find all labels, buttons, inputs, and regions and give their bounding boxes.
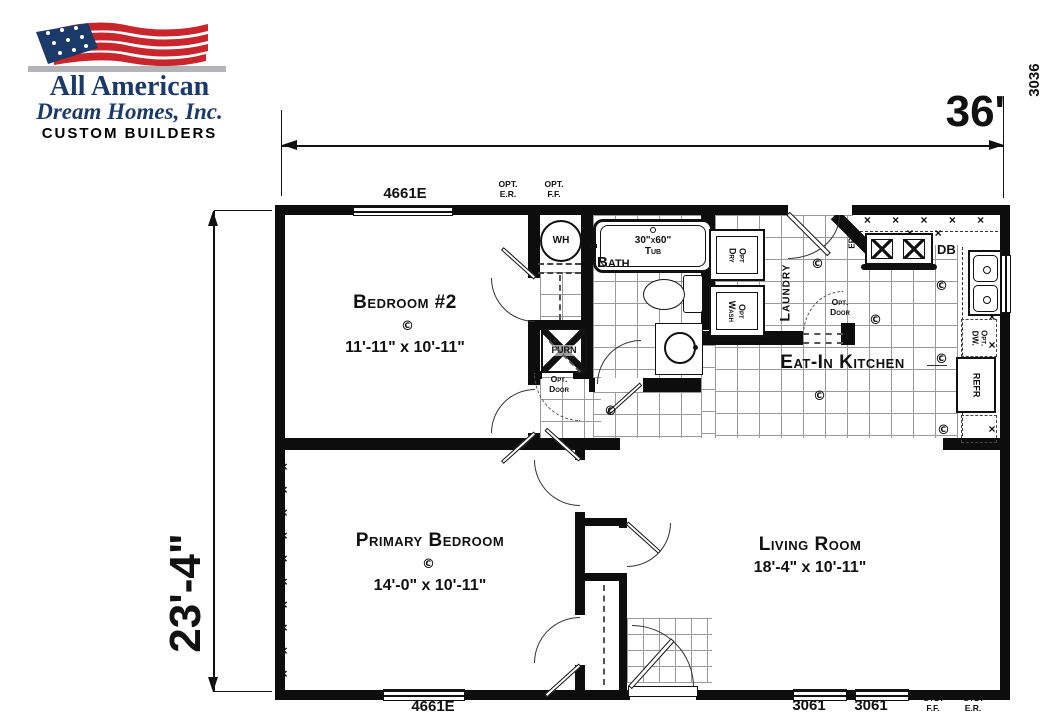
american-flag-icon xyxy=(30,20,212,70)
overall-depth-dimension: 23'-4" xyxy=(162,518,208,668)
primary-bedroom-size: 14'-0" x 10'-11" xyxy=(330,577,530,594)
back-door-opening xyxy=(788,205,852,215)
ceiling-outlet-symbol: © xyxy=(422,557,435,572)
water-heater-closet-front xyxy=(538,263,581,274)
closet-rod xyxy=(559,275,563,320)
extension-line xyxy=(214,691,272,692)
opt-ff-label: OPT. F.F. xyxy=(538,180,570,200)
tub-faucet xyxy=(590,244,597,248)
window-bottom-4661e xyxy=(383,689,465,701)
arrow-down-icon xyxy=(208,677,218,692)
extension-line xyxy=(281,110,282,196)
logo-tagline: CUSTOM BUILDERS xyxy=(22,126,237,142)
ceiling-outlet-symbol: © xyxy=(869,313,882,328)
floor-plan: Bedroom #2 © 11'-11" x 10'-11" WH FURN O… xyxy=(275,205,1010,700)
toilet xyxy=(643,279,685,310)
extension-line xyxy=(214,210,272,211)
opt-door-label: Opt. Door xyxy=(537,375,581,395)
optional-dryer: Opt Dry xyxy=(709,229,765,281)
ceiling-outlet-symbol: © xyxy=(813,389,826,404)
logo-subtitle: Dream Homes, Inc. xyxy=(22,100,237,125)
drawer-base-label: DB xyxy=(937,243,956,257)
window-label-3036: 3036 xyxy=(1027,57,1043,103)
width-dimension-line xyxy=(282,145,1004,147)
furnace: FURN xyxy=(541,328,587,373)
burner xyxy=(903,239,925,259)
arrow-left-icon xyxy=(282,140,297,150)
optional-washer: Opt Wash xyxy=(709,285,765,337)
sink-basin xyxy=(973,285,998,312)
door-arc xyxy=(534,460,580,506)
arrow-up-icon xyxy=(208,211,218,226)
range-front xyxy=(861,264,937,270)
extension-line xyxy=(1003,96,1004,198)
bedroom2-name: Bedroom #2 xyxy=(305,293,505,314)
water-heater: WH xyxy=(540,220,582,262)
tub-drain xyxy=(650,227,656,233)
ceiling-outlet-symbol: © xyxy=(937,423,950,438)
optional-dishwasher: Opt. DW. xyxy=(961,319,997,357)
ceiling-outlet-symbol: © xyxy=(604,404,617,419)
window-top-4661e xyxy=(353,205,453,216)
opt-er-label: OPT. E.R. xyxy=(492,180,524,200)
primary-bedroom-name: Primary Bedroom xyxy=(315,531,545,552)
window-label-top: 4661E xyxy=(360,186,450,202)
kitchen-sink xyxy=(968,250,1002,316)
door-arc xyxy=(534,617,580,663)
ceiling-outlet-symbol: © xyxy=(401,319,414,334)
closet-rod xyxy=(603,585,607,685)
overall-width-dimension: 36' xyxy=(905,88,1005,136)
arrow-right-icon xyxy=(989,140,1004,150)
window-3061-right xyxy=(855,689,909,701)
ceiling-outlet-symbol: © xyxy=(935,279,948,294)
refrigerator: REFR xyxy=(956,357,996,413)
sink-basin xyxy=(664,332,696,364)
door-arc xyxy=(491,278,535,322)
company-logo: All American Dream Homes, Inc. CUSTOM BU… xyxy=(22,18,237,150)
floor-plan-page: All American Dream Homes, Inc. CUSTOM BU… xyxy=(0,0,1060,721)
ceiling-outlet-symbol: © xyxy=(811,257,824,272)
logo-title: All American xyxy=(22,72,237,102)
marriage-wall-marks: × × × × × × × × × × xyxy=(280,455,298,685)
optional-cabinet xyxy=(961,415,997,443)
sink-faucet xyxy=(693,345,698,350)
living-room-name: Living Room xyxy=(715,535,905,556)
sink-basin xyxy=(973,255,998,282)
window-3061-left xyxy=(793,689,847,701)
burner xyxy=(871,239,893,259)
kitchen-name: Eat-In Kitchen xyxy=(755,353,930,374)
electrical-panel-label: EPB xyxy=(847,215,856,249)
bath-name: Bath xyxy=(597,255,630,271)
range xyxy=(865,233,933,265)
opt-door-label: Opt. Door xyxy=(820,298,860,318)
toilet-tank xyxy=(683,275,703,313)
ceiling-outlet-symbol: © xyxy=(935,352,948,367)
depth-dimension-line xyxy=(213,211,215,692)
window-label-bottom-left: 4661E xyxy=(388,699,478,715)
bedroom2-size: 11'-11" x 10'-11" xyxy=(305,339,505,356)
front-door-threshold xyxy=(628,686,698,697)
door-arc xyxy=(491,389,535,433)
living-room-size: 18'-4" x 10'-11" xyxy=(715,559,905,576)
laundry-name: Laundry xyxy=(777,253,792,333)
